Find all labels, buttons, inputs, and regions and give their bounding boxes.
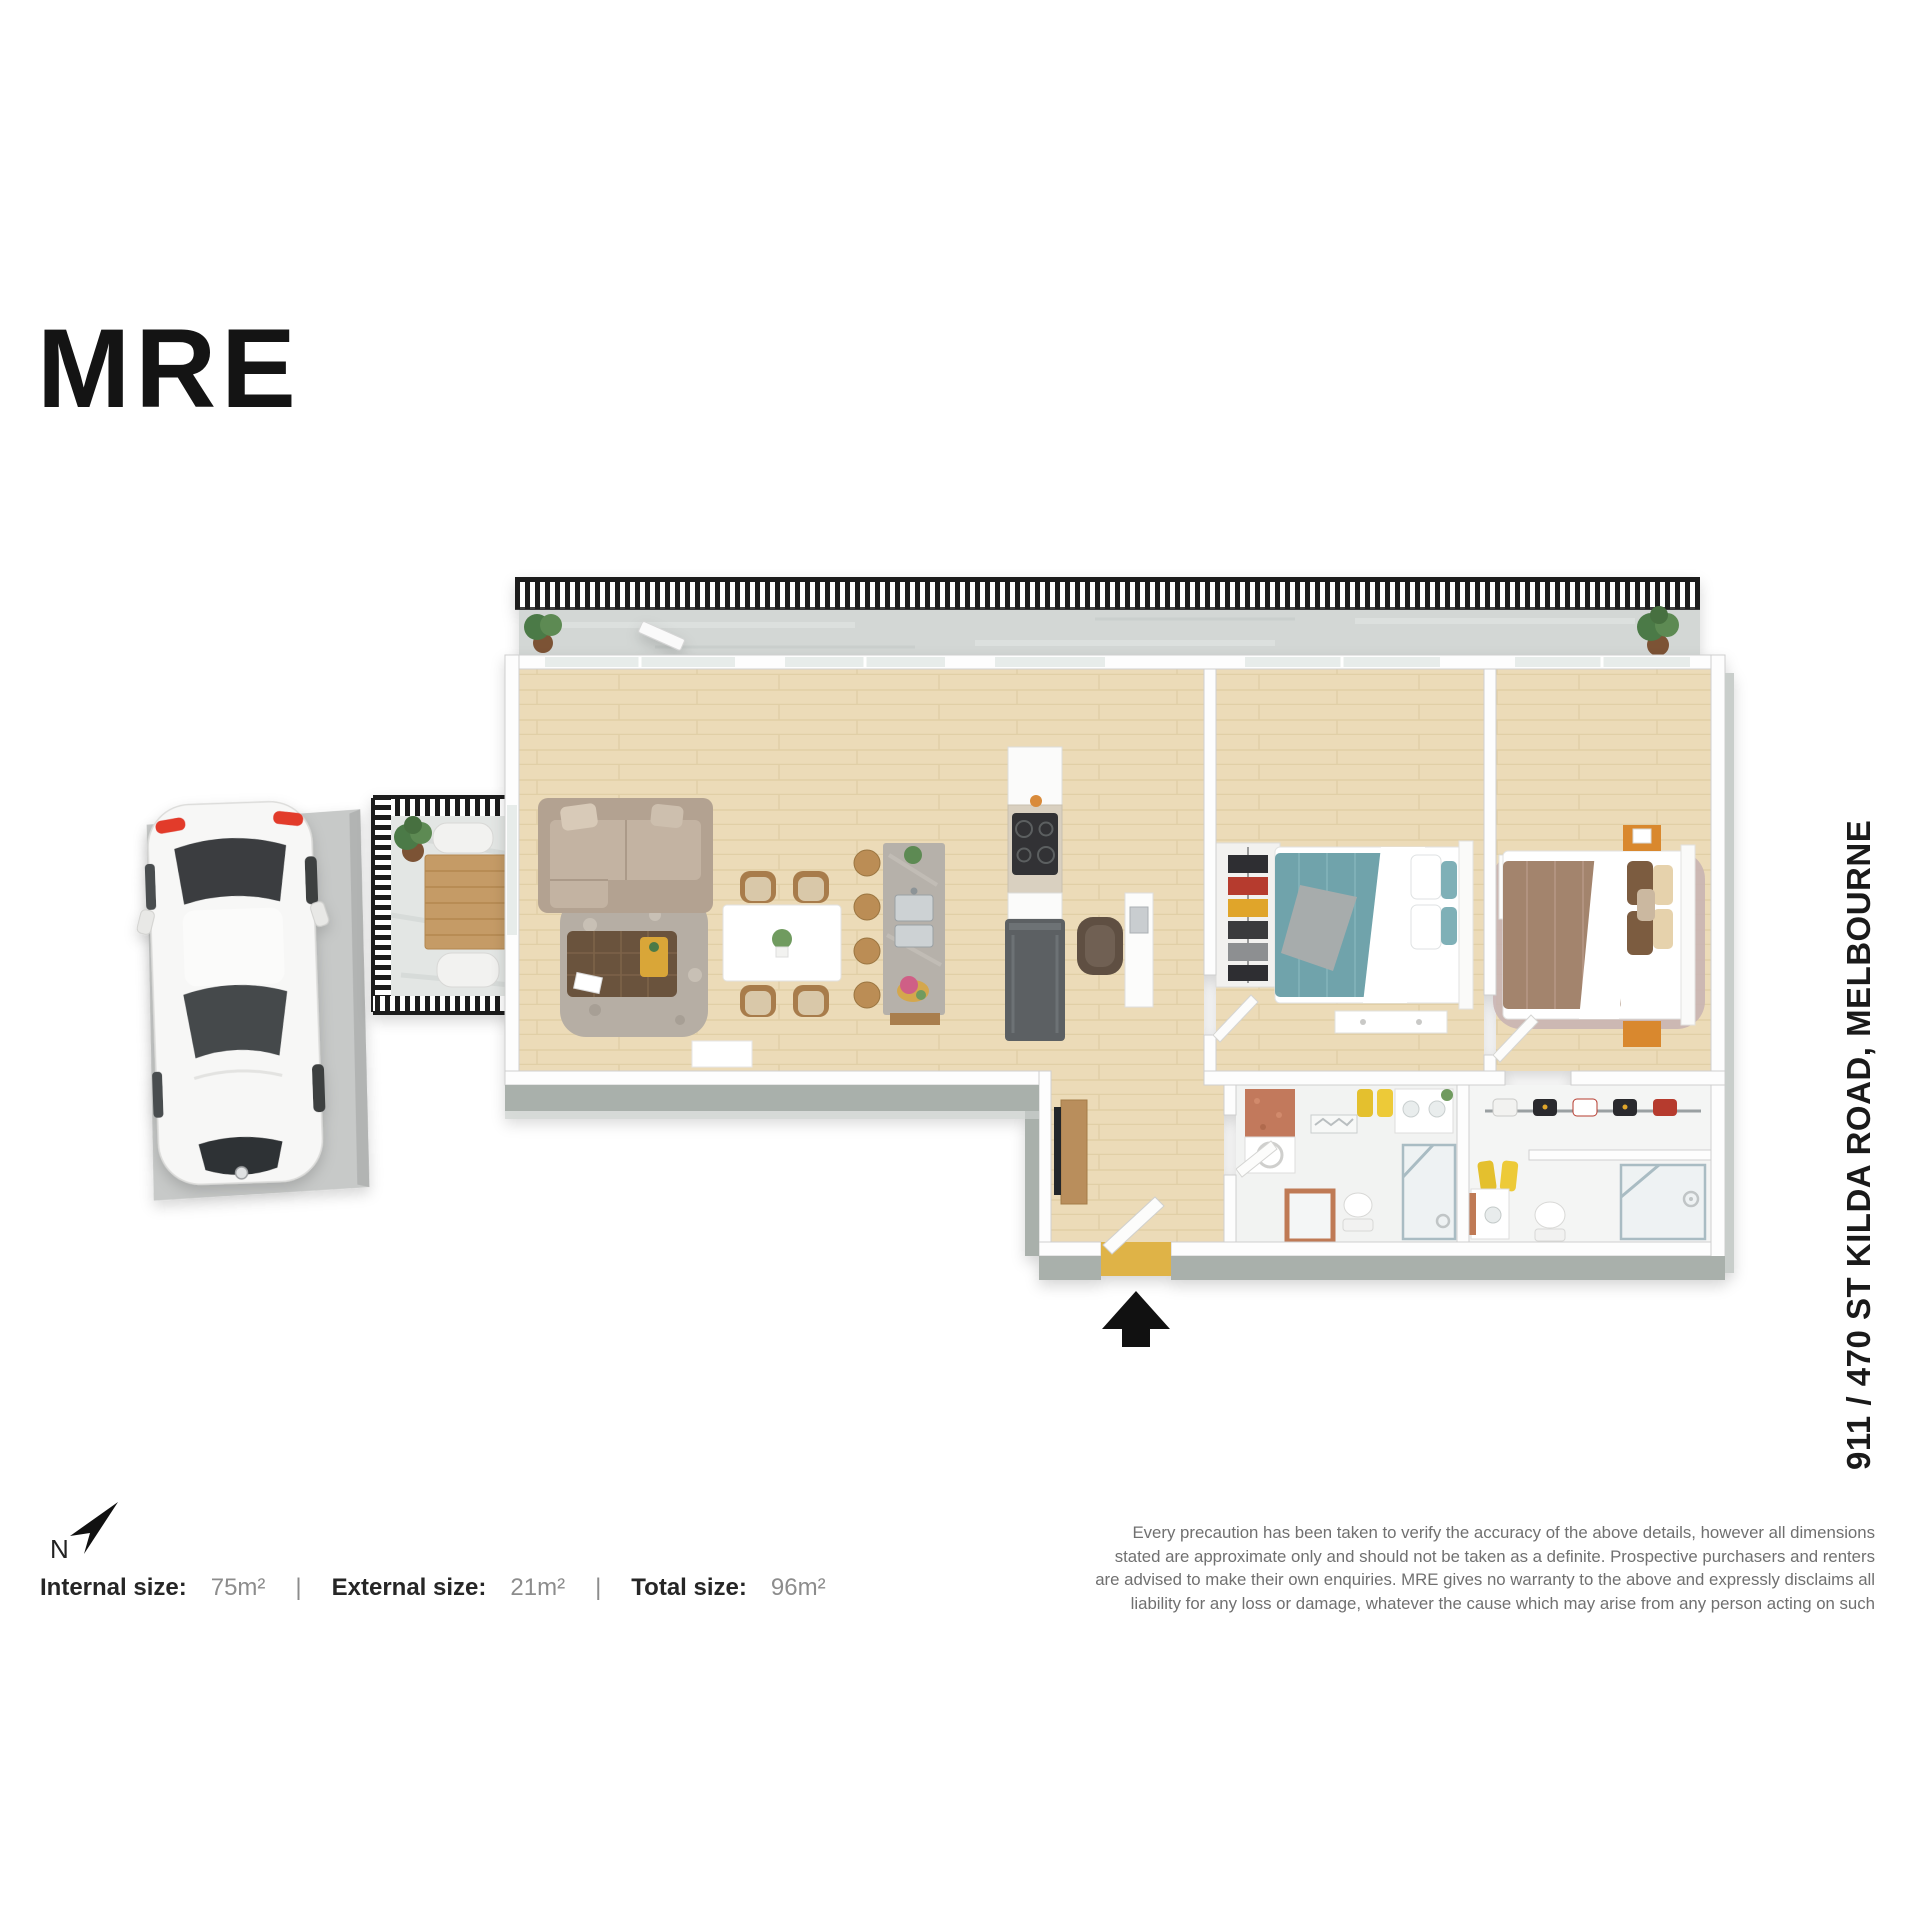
toilet — [1535, 1202, 1565, 1241]
separator: | — [595, 1574, 601, 1602]
study-desk — [1125, 893, 1153, 1007]
kitchen-run — [1005, 747, 1065, 1041]
tv — [1054, 1107, 1061, 1195]
pillow — [1411, 905, 1441, 949]
dining-chair — [793, 871, 829, 903]
pillow — [1411, 855, 1441, 899]
outdoor-table — [425, 855, 507, 949]
compass: N — [50, 1498, 140, 1578]
external-size-value: 21m² — [510, 1574, 565, 1602]
toilet — [1343, 1193, 1373, 1231]
pillow — [1653, 865, 1673, 905]
bedside-table — [1623, 825, 1661, 851]
headboard — [1459, 841, 1473, 1009]
brand-logo: MRE — [37, 313, 301, 425]
entry-arrow-icon — [1102, 1291, 1170, 1347]
shower — [1621, 1165, 1705, 1239]
towel — [1357, 1089, 1373, 1117]
car — [132, 800, 339, 1187]
apartment — [505, 621, 1734, 1280]
table-plant — [772, 929, 792, 949]
railing — [515, 581, 1700, 609]
dining-table — [723, 905, 841, 981]
north-arrow-icon — [66, 1500, 124, 1558]
total-size-value: 96m² — [771, 1574, 826, 1602]
dining-chair — [793, 985, 829, 1017]
pillow — [1653, 909, 1673, 949]
internal-size-label: Internal size: — [40, 1574, 187, 1602]
internal-size-value: 75m² — [211, 1574, 266, 1602]
dining-chair — [740, 871, 776, 903]
towel — [1499, 1160, 1518, 1192]
shoes — [1573, 1099, 1597, 1116]
shoes — [1493, 1099, 1517, 1116]
car-wheel — [312, 1064, 326, 1112]
kitchen-island — [883, 843, 945, 1025]
dresser — [1335, 1011, 1447, 1033]
bath-mat — [1311, 1115, 1357, 1133]
total-size-label: Total size: — [631, 1574, 747, 1602]
headboard — [1681, 845, 1695, 1025]
car-rear-window — [174, 836, 288, 905]
balcony-main — [515, 577, 1700, 656]
railing — [373, 798, 517, 816]
car-wheel — [305, 856, 319, 904]
compass-label: N — [50, 1534, 69, 1565]
cooktop — [1012, 813, 1058, 875]
bed-2 — [1503, 845, 1695, 1025]
external-size-label: External size: — [332, 1574, 487, 1602]
outdoor-chair — [437, 953, 499, 987]
fridge — [1005, 919, 1065, 1041]
sink — [895, 888, 933, 948]
tv-console — [1054, 1100, 1087, 1204]
outdoor-chair — [433, 823, 493, 853]
sofa — [538, 798, 713, 913]
dining-chair — [740, 985, 776, 1017]
utensil-pot — [1030, 795, 1042, 807]
floorplan-flyer: MRE — [0, 0, 1920, 1920]
island-plant — [904, 846, 922, 864]
bed-1 — [1275, 841, 1473, 1009]
shoes — [1653, 1099, 1677, 1116]
floor-plan-graphic — [95, 555, 1785, 1365]
shower — [1403, 1145, 1455, 1239]
balcony-small — [371, 795, 517, 1015]
separator: | — [295, 1574, 301, 1602]
towel — [1377, 1089, 1393, 1117]
size-summary: Internal size: 75m² | External size: 21m… — [40, 1574, 856, 1602]
wardrobe — [1216, 843, 1280, 987]
cushion — [1441, 861, 1457, 899]
property-address: 911 / 470 ST KILDA ROAD, MELBOURNE — [1840, 820, 1878, 1470]
mirror — [1287, 1191, 1333, 1241]
vanity — [1395, 1089, 1453, 1133]
car-windshield — [183, 983, 289, 1059]
car-badge — [235, 1167, 247, 1179]
disclaimer-text: Every precaution has been taken to verif… — [1095, 1521, 1875, 1615]
bedside-table — [1623, 1021, 1661, 1047]
vanity — [1469, 1189, 1509, 1239]
floor-mat — [692, 1041, 752, 1067]
desk-chair — [1077, 917, 1123, 975]
railing — [373, 798, 391, 1012]
coffee-table — [567, 931, 677, 997]
cushion — [1637, 889, 1655, 921]
car-roof — [182, 907, 285, 986]
cushion — [1441, 907, 1457, 945]
